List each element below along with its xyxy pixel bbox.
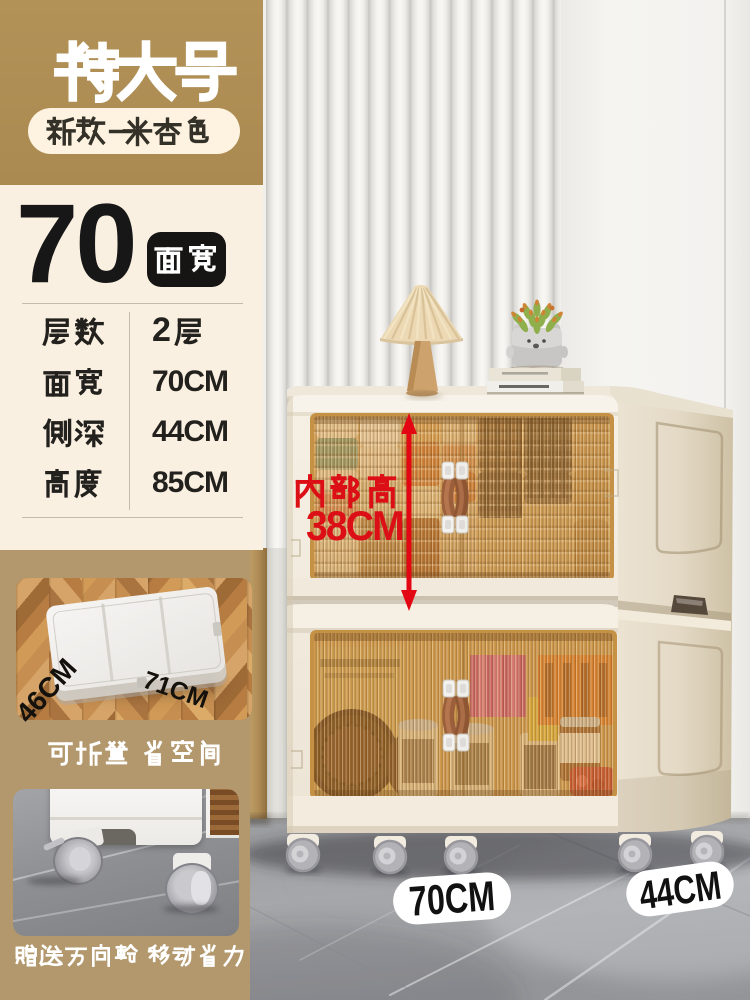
svg-text:70CM: 70CM [407, 872, 496, 925]
